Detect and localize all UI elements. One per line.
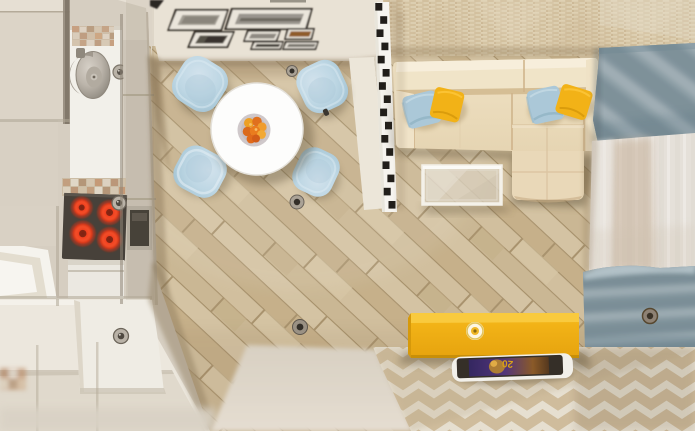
svg-text:20: 20 (501, 357, 513, 369)
